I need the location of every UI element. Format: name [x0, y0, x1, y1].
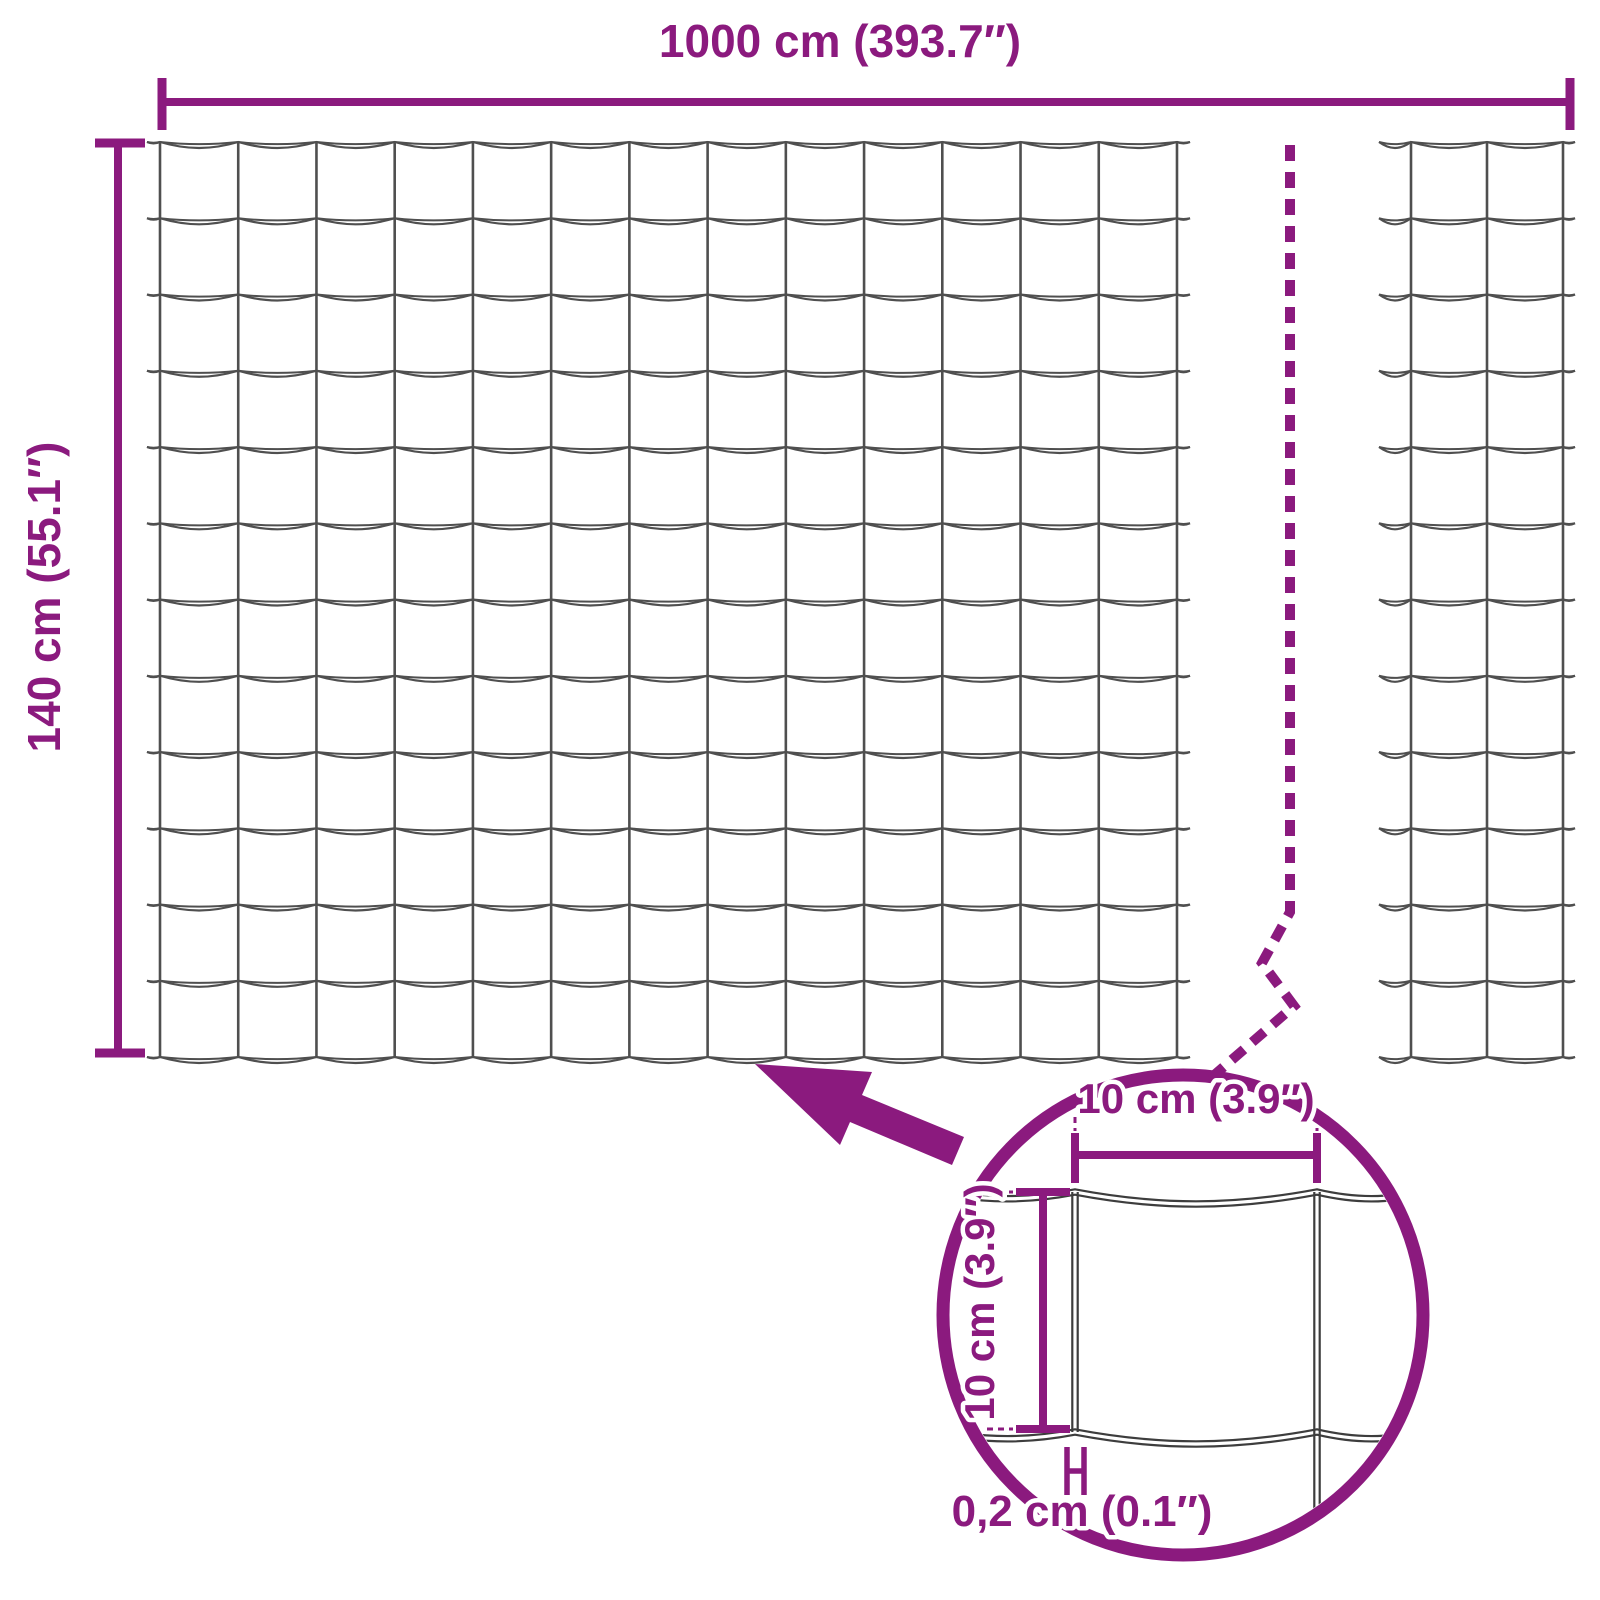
mesh-break-line [1212, 145, 1294, 1077]
detail-opening-height-label: 10 cm (3.9″) [956, 1183, 1003, 1420]
mesh-horizontal-wire [147, 981, 1190, 983]
diagram-canvas: 1000 cm (393.7″) 140 cm (55.1″) 10 cm (3… [0, 0, 1600, 1600]
mesh-horizontal-wire [147, 828, 1190, 830]
mesh-horizontal-wire [147, 905, 1190, 907]
mesh-horizontal-wire [147, 295, 1190, 297]
magnifier-detail [940, 1075, 1426, 1555]
mesh-horizontal-wire [147, 676, 1190, 678]
mesh-horizontal-wire [147, 752, 1190, 754]
mesh-horizontal-wire [147, 218, 1190, 220]
mesh-horizontal-wire [147, 523, 1190, 525]
arrow-shape [755, 1064, 964, 1165]
detail-opening-width-label: 10 cm (3.9″) [1077, 1075, 1314, 1122]
zoom-arrow [755, 1064, 964, 1165]
mesh-horizontal-wire [147, 447, 1190, 449]
wire-thickness-label: 0,2 cm (0.1″) [952, 1487, 1213, 1536]
total-width-label: 1000 cm (393.7″) [659, 15, 1021, 67]
break-dashed-line [1212, 145, 1294, 1077]
side-mesh-panel [1379, 142, 1575, 1063]
total-height-label: 140 cm (55.1″) [18, 442, 70, 753]
fence-mesh [147, 142, 1575, 1063]
mesh-horizontal-wire [147, 371, 1190, 373]
diagram-stage: 1000 cm (393.7″) 140 cm (55.1″) 10 cm (3… [0, 0, 1600, 1600]
mesh-horizontal-wire [147, 600, 1190, 602]
mesh-horizontal-wire [147, 1057, 1190, 1059]
mesh-horizontal-wire [147, 142, 1190, 144]
main-mesh-panel [147, 142, 1190, 1063]
